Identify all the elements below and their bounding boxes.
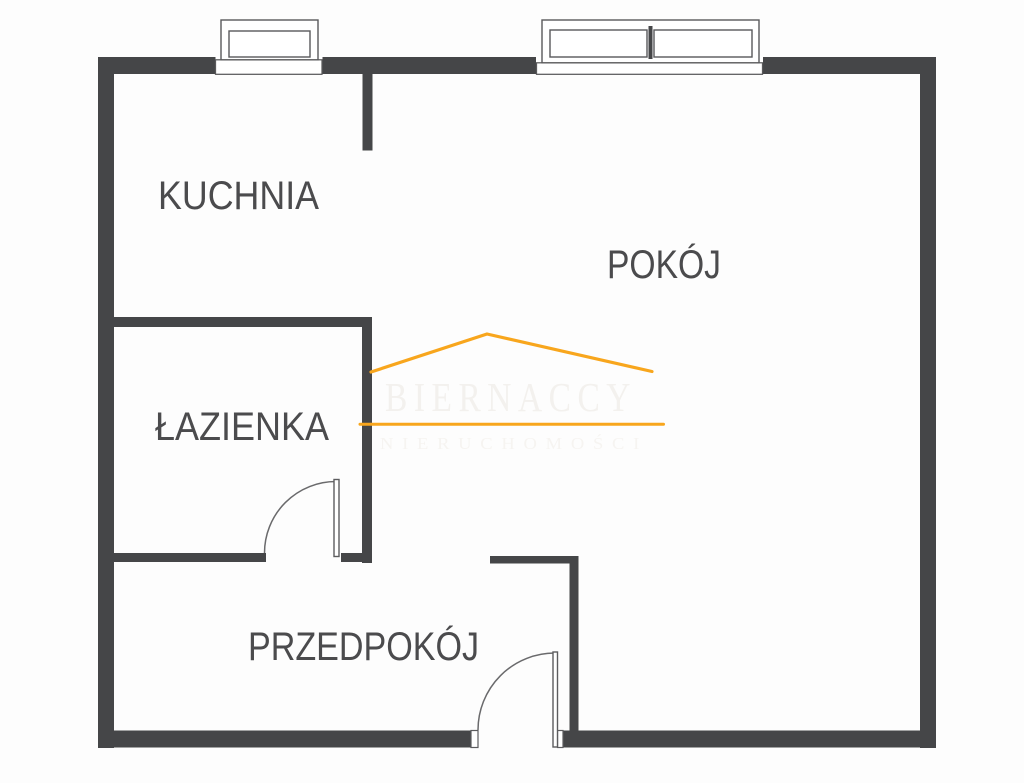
svg-text:PRZEDPOKÓJ: PRZEDPOKÓJ [248,624,479,669]
svg-text:NIERUCHOMOŚCI: NIERUCHOMOŚCI [380,434,648,453]
svg-text:KUCHNIA: KUCHNIA [158,174,319,218]
svg-text:POKÓJ: POKÓJ [607,242,721,287]
svg-text:BIERNACCY: BIERNACCY [385,374,637,420]
svg-text:ŁAZIENKA: ŁAZIENKA [155,405,329,449]
